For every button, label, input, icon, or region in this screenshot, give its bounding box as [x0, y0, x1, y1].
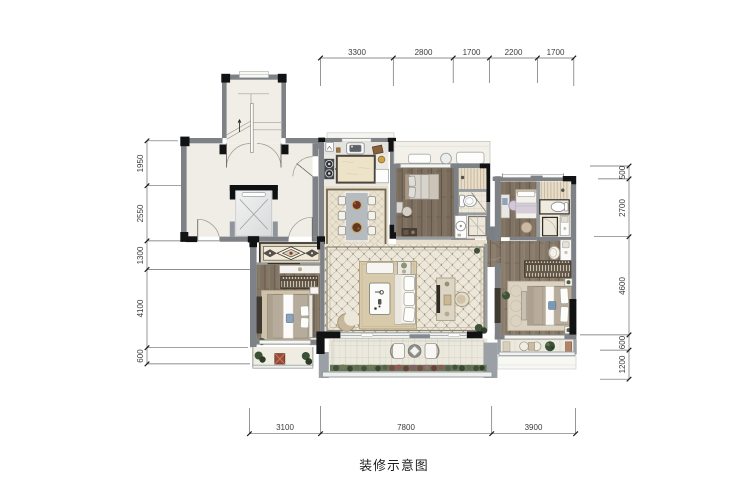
svg-text:装修示意图: 装修示意图	[359, 458, 428, 473]
svg-text:1300: 1300	[136, 246, 145, 264]
svg-text:500: 500	[618, 165, 627, 179]
svg-text:3900: 3900	[525, 423, 543, 432]
svg-text:600: 600	[136, 349, 145, 363]
svg-text:2550: 2550	[136, 204, 145, 222]
svg-text:3300: 3300	[348, 48, 366, 57]
svg-text:1950: 1950	[136, 154, 145, 172]
svg-text:1700: 1700	[547, 48, 565, 57]
svg-text:1700: 1700	[463, 48, 481, 57]
svg-text:600: 600	[618, 335, 627, 349]
svg-text:2800: 2800	[415, 48, 433, 57]
svg-text:1200: 1200	[618, 355, 627, 373]
svg-text:3100: 3100	[276, 423, 294, 432]
svg-text:4100: 4100	[136, 299, 145, 317]
svg-text:4600: 4600	[618, 277, 627, 295]
svg-text:2200: 2200	[505, 48, 523, 57]
svg-text:7800: 7800	[397, 423, 415, 432]
svg-text:2700: 2700	[618, 199, 627, 217]
